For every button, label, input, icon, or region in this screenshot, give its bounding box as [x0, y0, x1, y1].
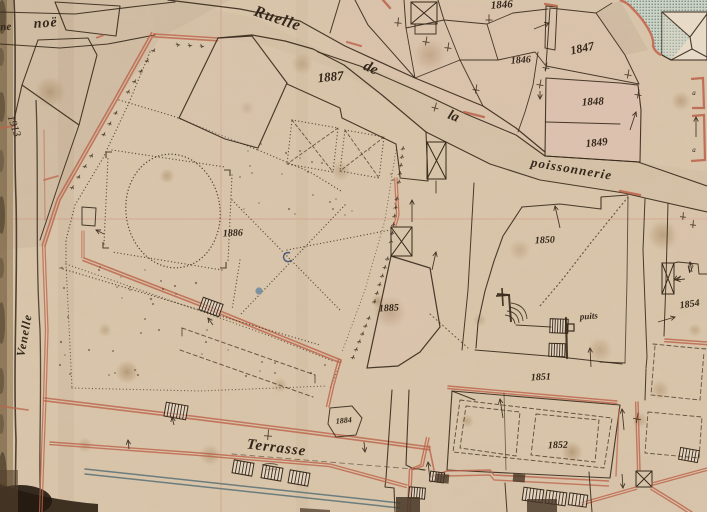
svg-text:noë: noë [33, 15, 58, 32]
svg-text:ne: ne [0, 21, 12, 34]
svg-text:a: a [692, 89, 696, 97]
svg-text:puits: puits [578, 310, 598, 321]
svg-text:1887: 1887 [317, 68, 345, 86]
svg-text:1848: 1848 [582, 95, 605, 108]
svg-text:1849: 1849 [585, 136, 609, 150]
svg-text:1850: 1850 [535, 234, 556, 246]
svg-text:1851: 1851 [531, 371, 552, 383]
svg-text:a: a [692, 146, 696, 154]
svg-text:1886: 1886 [223, 227, 244, 239]
svg-text:1846: 1846 [490, 0, 513, 12]
svg-text:1846: 1846 [510, 54, 531, 66]
svg-text:1884: 1884 [335, 415, 352, 425]
svg-text:1852: 1852 [548, 440, 568, 452]
svg-text:1885: 1885 [379, 302, 400, 314]
